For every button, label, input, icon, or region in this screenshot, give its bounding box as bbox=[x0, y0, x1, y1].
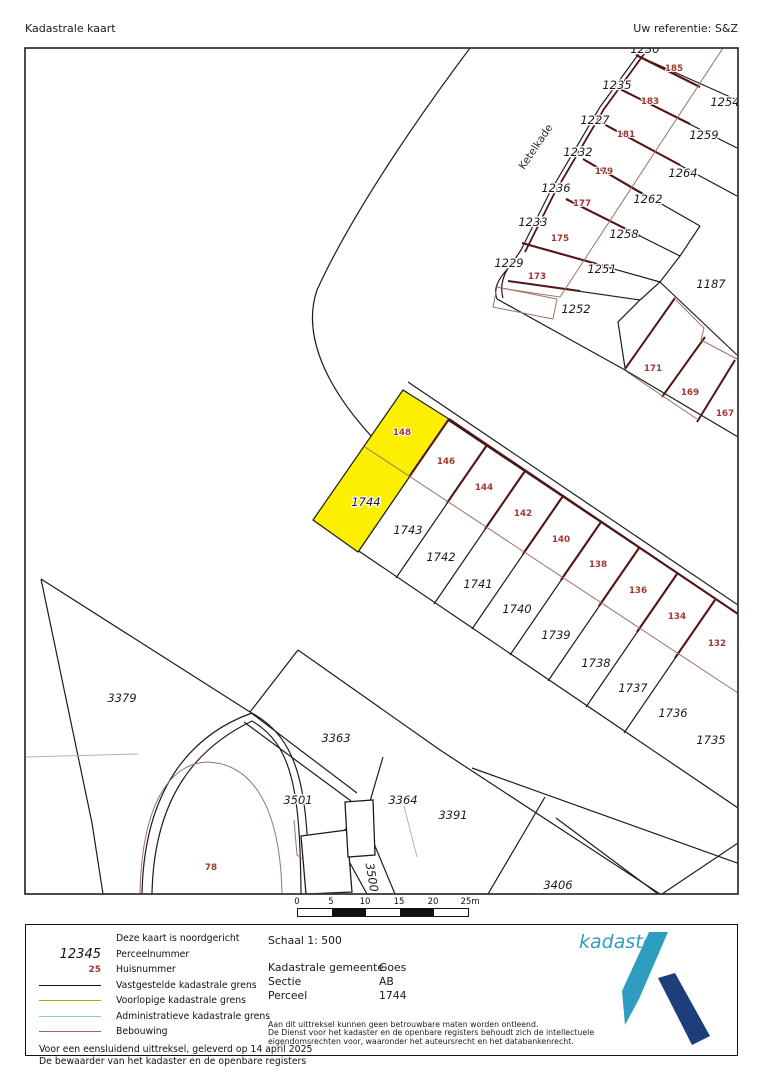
parcel-number-label: 3406 bbox=[543, 878, 572, 892]
house-number-label: 175 bbox=[551, 234, 569, 244]
parcel-number-label: 1735 bbox=[696, 733, 725, 747]
admin-boundary-swatch bbox=[39, 1016, 101, 1017]
scale-tick: 0 bbox=[294, 897, 299, 907]
fixed-boundary-swatch bbox=[39, 985, 101, 986]
gemeente-label: Kadastrale gemeente bbox=[268, 961, 384, 974]
parcel-number-label: 1252 bbox=[561, 302, 590, 316]
gemeente-value: Goes bbox=[379, 961, 406, 974]
provisional-boundary-swatch bbox=[39, 1000, 101, 1001]
scale-bar: 0 5 10 15 20 25m bbox=[285, 897, 485, 919]
fixed-boundary-label: Vastgestelde kadastrale grens bbox=[116, 980, 257, 991]
street-label: Ketelkade bbox=[517, 122, 556, 172]
parcel-number-label: 1187 bbox=[696, 277, 726, 291]
scale-tick: 10 bbox=[360, 897, 371, 907]
parcel-number-label: 1742 bbox=[426, 550, 455, 564]
parcel-number-label: 1740 bbox=[502, 602, 531, 616]
scale-bar-segments bbox=[297, 908, 469, 917]
issued-note: Voor een eensluidend uittreksel, gelever… bbox=[39, 1044, 312, 1068]
parcel-number-label: 1259 bbox=[689, 128, 718, 142]
parcel-number-label: 1229 bbox=[494, 256, 523, 270]
house-number-label: 169 bbox=[681, 388, 699, 398]
scale-tick: 25m bbox=[460, 897, 479, 907]
house-number-label: 173 bbox=[528, 272, 546, 282]
parcel-number-label: 1235 bbox=[602, 78, 631, 92]
scale-label: Schaal 1: 500 bbox=[268, 934, 342, 947]
issued-line2: De bewaarder van het kadaster en de open… bbox=[39, 1056, 312, 1068]
perceel-label: Perceel bbox=[268, 989, 307, 1002]
info-row-gemeente: Kadastrale gemeente Goes bbox=[268, 961, 384, 975]
cadastral-extract-page: Kadastrale kaart Uw referentie: S&Z bbox=[0, 0, 763, 1080]
house-number-label: 148 bbox=[393, 428, 411, 438]
parcel-number-label: 1227 bbox=[580, 113, 610, 127]
parcel-number-label: 3363 bbox=[321, 731, 350, 745]
house-number-label: Huisnummer bbox=[116, 964, 176, 975]
legend-row-admin: Administratieve kadastrale grens bbox=[26, 1009, 264, 1025]
house-number-label: 167 bbox=[716, 409, 734, 419]
parcel-number-label: 1738 bbox=[581, 656, 610, 670]
parcel-number-label: 1233 bbox=[518, 215, 547, 229]
info-row-perceel: Perceel 1744 bbox=[268, 989, 384, 1003]
legend-row-provisional: Voorlopige kadastrale grens bbox=[26, 993, 264, 1009]
parcel-info-table: Kadastrale gemeente Goes Sectie AB Perce… bbox=[268, 961, 384, 1004]
kadaster-logo-icon bbox=[611, 927, 721, 1053]
legend-row-north: Deze kaart is noordgericht bbox=[26, 931, 264, 947]
house-number-label: 183 bbox=[641, 97, 659, 107]
building-lines bbox=[140, 48, 738, 894]
parcel-number-label: 1258 bbox=[609, 227, 638, 241]
building-swatch bbox=[39, 1031, 101, 1032]
house-number-label: 136 bbox=[629, 586, 647, 596]
parcel-number-label: 1737 bbox=[618, 681, 648, 695]
building-footprints bbox=[301, 800, 375, 894]
provisional-boundary-label: Voorlopige kadastrale grens bbox=[116, 995, 246, 1006]
house-number-label: 171 bbox=[644, 364, 662, 374]
disclaimer-line3: eigendomsrechten voor, waaronder het aut… bbox=[268, 1038, 594, 1046]
parcel-number-label: 1736 bbox=[658, 706, 687, 720]
house-number-label: 179 bbox=[595, 167, 613, 177]
house-number-label: 177 bbox=[573, 199, 591, 209]
legend-row-parcel: 12345 Perceelnummer bbox=[26, 947, 264, 963]
scale-tick: 20 bbox=[428, 897, 439, 907]
parcel-number-label: 3500 bbox=[363, 862, 382, 893]
parcel-number-label: 1744 bbox=[351, 495, 380, 509]
house-number-label: 144 bbox=[475, 483, 493, 493]
parcel-number-label: 1741 bbox=[463, 577, 492, 591]
parcel-number-label: 1264 bbox=[668, 166, 697, 180]
house-number-label: 132 bbox=[708, 639, 726, 649]
footer-panel: Deze kaart is noordgericht 12345 Perceel… bbox=[25, 924, 738, 1056]
parcel-number-label: 3391 bbox=[438, 808, 467, 822]
parcel-number-sample: 12345 bbox=[60, 947, 101, 962]
parcel-number-label: Perceelnummer bbox=[116, 949, 189, 960]
legend: Deze kaart is noordgericht 12345 Perceel… bbox=[26, 931, 264, 1040]
sectie-label: Sectie bbox=[268, 975, 301, 988]
scale-tick: 5 bbox=[328, 897, 333, 907]
disclaimer: Aan dit uittreksel kunnen geen betrouwba… bbox=[268, 1021, 594, 1046]
parcel-number-label: 1739 bbox=[541, 628, 570, 642]
parcel-number-label: 1743 bbox=[393, 523, 422, 537]
parcel-number-label: 1230 bbox=[630, 42, 659, 56]
house-number-sample: 25 bbox=[88, 965, 101, 975]
house-number-label: 138 bbox=[589, 560, 607, 570]
sectie-value: AB bbox=[379, 975, 394, 988]
house-number-label: 140 bbox=[552, 535, 570, 545]
parcel-number-label: 1262 bbox=[633, 192, 662, 206]
building-label: Bebouwing bbox=[116, 1026, 168, 1037]
house-number-label: 134 bbox=[668, 612, 686, 622]
legend-row-fixed: Vastgestelde kadastrale grens bbox=[26, 978, 264, 994]
perceel-value: 1744 bbox=[379, 989, 406, 1002]
parcel-number-label: 1236 bbox=[541, 181, 570, 195]
parcel-number-label: 1251 bbox=[587, 262, 616, 276]
house-number-label: 146 bbox=[437, 457, 455, 467]
map-labels: 1230123512271232123612331229125412591264… bbox=[107, 42, 739, 893]
scale-tick: 15 bbox=[394, 897, 405, 907]
house-number-label: 142 bbox=[514, 509, 532, 519]
house-number-label: 185 bbox=[665, 64, 683, 74]
parcel-number-label: 3379 bbox=[107, 691, 136, 705]
highlighted-parcel-1744 bbox=[313, 390, 449, 552]
house-number-label: 78 bbox=[205, 863, 217, 873]
info-row-sectie: Sectie AB bbox=[268, 975, 384, 989]
parcel-number-label: 3501 bbox=[283, 793, 312, 807]
legend-north-note: Deze kaart is noordgericht bbox=[116, 933, 239, 944]
parcel-number-label: 1232 bbox=[563, 145, 592, 159]
house-number-label: 181 bbox=[617, 130, 635, 140]
parcel-number-label: 3364 bbox=[388, 793, 417, 807]
parcel-number-label: 1254 bbox=[710, 95, 739, 109]
legend-row-building: Bebouwing bbox=[26, 1024, 264, 1040]
legend-row-house: 25 Huisnummer bbox=[26, 962, 264, 978]
admin-boundary-label: Administratieve kadastrale grens bbox=[116, 1011, 270, 1022]
